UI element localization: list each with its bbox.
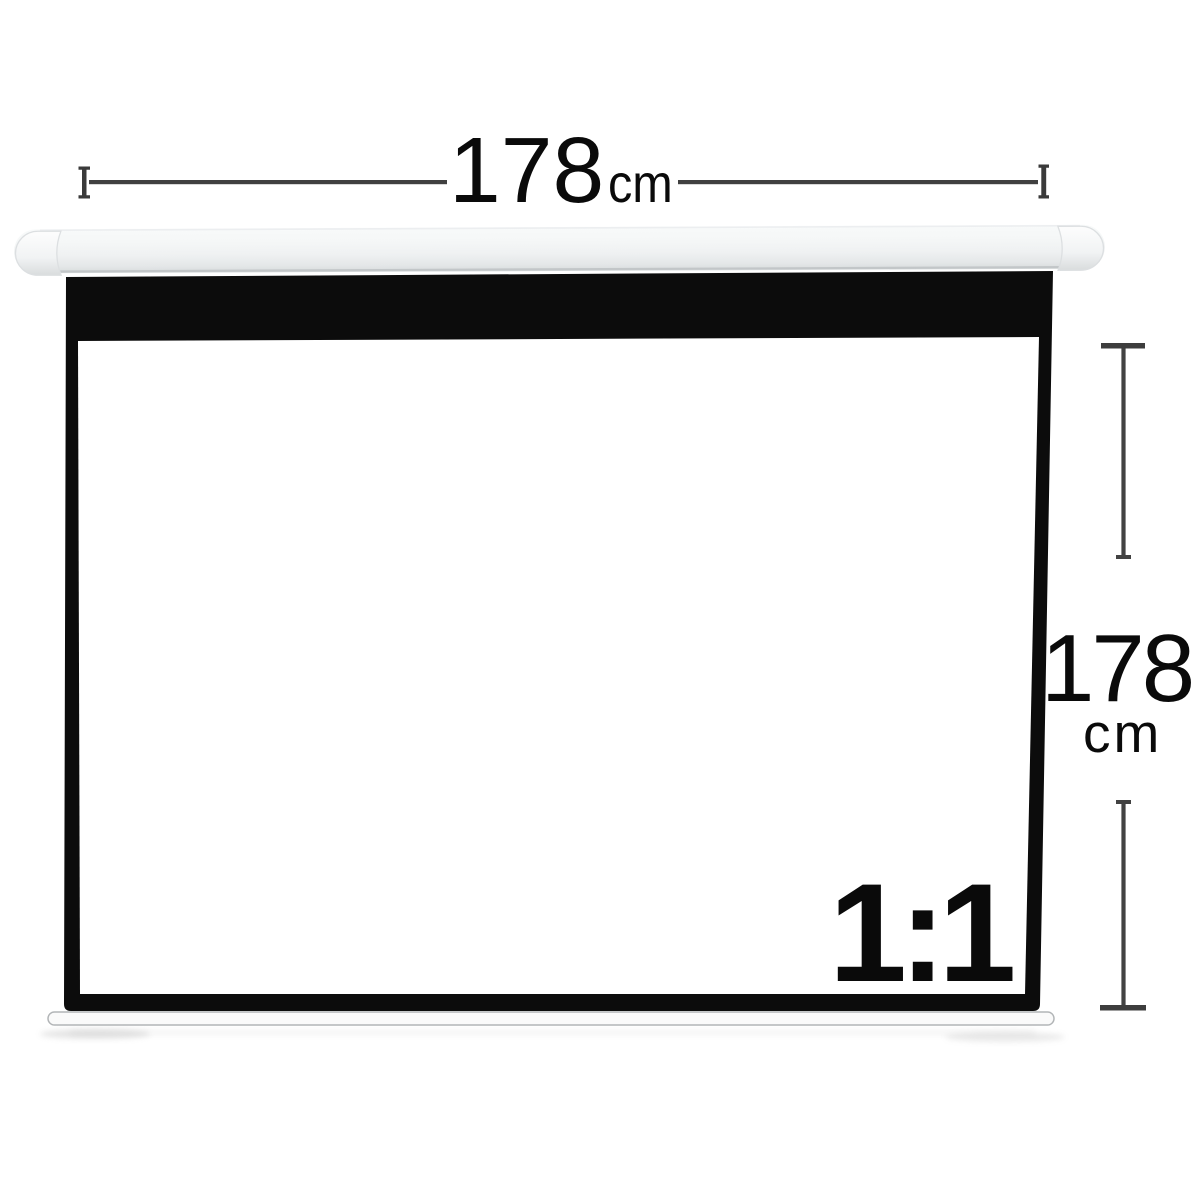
- svg-text:178: 178: [449, 118, 604, 222]
- svg-text:1:1: 1:1: [829, 854, 1012, 1011]
- svg-text:cm: cm: [608, 153, 673, 214]
- svg-text:cm: cm: [1083, 702, 1162, 764]
